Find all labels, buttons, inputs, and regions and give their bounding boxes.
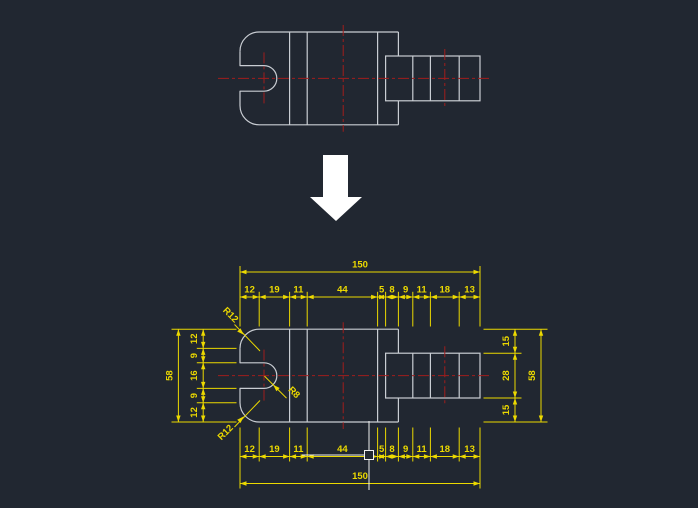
dim-arrow bbox=[259, 454, 266, 458]
dim-value: 28 bbox=[501, 370, 512, 381]
dim-arrow bbox=[474, 481, 481, 485]
dim-arrow bbox=[406, 454, 413, 458]
dim-arrow bbox=[201, 388, 205, 395]
dim-arrow bbox=[513, 353, 517, 360]
dim-arrow bbox=[392, 454, 399, 458]
dim-arrow bbox=[301, 295, 308, 299]
dim-arrow bbox=[513, 392, 517, 399]
dim-arrow bbox=[371, 295, 378, 299]
dim-arrow bbox=[513, 347, 517, 354]
dim-chain-left: 12916912 bbox=[189, 329, 205, 422]
dim-value: 11 bbox=[293, 444, 304, 455]
dim-arrow bbox=[176, 329, 180, 336]
dim-arrow bbox=[539, 329, 543, 336]
dim-value: 9 bbox=[403, 444, 408, 455]
radius-label-slot: R8 bbox=[286, 385, 302, 401]
dim-arrow bbox=[290, 295, 297, 299]
dim-value: 8 bbox=[389, 284, 394, 295]
dim-value: 12 bbox=[244, 444, 255, 455]
pickbox bbox=[365, 451, 374, 460]
dim-value: 150 bbox=[352, 471, 368, 482]
dim-value: 11 bbox=[417, 444, 428, 455]
dim-value: 11 bbox=[293, 284, 304, 295]
dim-arrow bbox=[201, 342, 205, 349]
dim-total-left: 58 bbox=[164, 329, 180, 422]
dim-value: 12 bbox=[189, 407, 200, 418]
dim-value: 15 bbox=[501, 335, 512, 346]
leader-arrow bbox=[237, 328, 244, 335]
dim-arrow bbox=[430, 454, 437, 458]
dim-total-bottom: 150 bbox=[240, 471, 480, 486]
dim-value: 13 bbox=[464, 444, 475, 455]
dim-arrow bbox=[424, 295, 431, 299]
dim-arrow bbox=[453, 295, 460, 299]
top-view bbox=[218, 25, 490, 132]
dim-value: 9 bbox=[403, 284, 408, 295]
dim-arrow bbox=[424, 454, 431, 458]
dim-arrow bbox=[513, 398, 517, 405]
down-arrow-icon bbox=[310, 155, 362, 221]
dim-value: 58 bbox=[164, 370, 175, 381]
dim-value: 9 bbox=[189, 393, 200, 398]
dim-arrow bbox=[290, 454, 297, 458]
dim-arrow bbox=[201, 382, 205, 389]
leader-arrow bbox=[237, 416, 244, 423]
dim-value: 8 bbox=[389, 444, 394, 455]
dim-arrow bbox=[201, 416, 205, 423]
dim-arrow bbox=[201, 348, 205, 355]
dim-value: 19 bbox=[269, 444, 280, 455]
dim-arrow bbox=[459, 454, 466, 458]
dim-arrow bbox=[240, 481, 247, 485]
dim-arrow bbox=[453, 454, 460, 458]
dim-arrow bbox=[201, 396, 205, 403]
radius-label-bottom-left: R12 bbox=[216, 423, 236, 443]
dim-arrow bbox=[430, 295, 437, 299]
body-top-outline bbox=[240, 32, 398, 51]
dim-arrow bbox=[406, 295, 413, 299]
dim-chain-top: 12191144589111813 bbox=[240, 284, 480, 299]
bottom-view bbox=[218, 322, 490, 429]
dim-arrow bbox=[413, 454, 420, 458]
dim-value: 5 bbox=[379, 284, 385, 295]
dim-arrow bbox=[253, 295, 260, 299]
cad-viewport[interactable]: 1501219114458911181312191144589111813150… bbox=[0, 0, 698, 508]
dim-arrow bbox=[253, 454, 260, 458]
dim-arrow bbox=[413, 295, 420, 299]
dim-arrow bbox=[201, 356, 205, 363]
dim-value: 150 bbox=[352, 259, 368, 270]
dim-arrow bbox=[392, 295, 399, 299]
dim-arrow bbox=[201, 363, 205, 370]
dim-chain-right: 152815 bbox=[501, 329, 517, 422]
dim-value: 13 bbox=[464, 284, 475, 295]
dim-arrow bbox=[539, 416, 543, 423]
dim-value: 9 bbox=[189, 353, 200, 358]
dim-arrow bbox=[474, 454, 481, 458]
dim-total-right: 58 bbox=[527, 329, 543, 422]
dim-value: 15 bbox=[501, 404, 512, 415]
dim-arrow bbox=[240, 295, 247, 299]
dim-arrow bbox=[201, 329, 205, 336]
dim-value: 5 bbox=[379, 444, 385, 455]
dim-arrow bbox=[283, 295, 290, 299]
dim-value: 44 bbox=[337, 444, 348, 455]
dim-arrow bbox=[513, 329, 517, 336]
dim-value: 12 bbox=[244, 284, 255, 295]
dim-value: 19 bbox=[269, 284, 280, 295]
dim-arrow bbox=[474, 295, 481, 299]
leader-line bbox=[235, 325, 261, 352]
dim-total-top: 150 bbox=[240, 259, 480, 274]
dim-arrow bbox=[513, 416, 517, 423]
dim-value: 12 bbox=[189, 334, 200, 345]
dim-arrow bbox=[240, 270, 247, 274]
dim-value: 44 bbox=[337, 284, 348, 295]
dim-value: 11 bbox=[417, 284, 428, 295]
dim-arrow bbox=[398, 295, 405, 299]
body-top-outline bbox=[240, 329, 398, 348]
dim-arrow bbox=[307, 295, 314, 299]
dimension-annotations: 1501219114458911181312191144589111813150… bbox=[164, 259, 547, 488]
dim-arrow bbox=[386, 454, 393, 458]
dim-arrow bbox=[240, 454, 247, 458]
dim-arrow bbox=[474, 270, 481, 274]
dim-arrow bbox=[459, 295, 466, 299]
leader-line bbox=[235, 401, 261, 428]
dim-arrow bbox=[259, 295, 266, 299]
dim-arrow bbox=[386, 295, 393, 299]
dim-arrow bbox=[398, 454, 405, 458]
dim-value: 58 bbox=[527, 370, 538, 381]
dim-chain-bottom: 12191144589111813 bbox=[240, 444, 480, 459]
dim-arrow bbox=[176, 416, 180, 423]
radius-label-top-left: R12 bbox=[220, 305, 240, 325]
dim-value: 18 bbox=[440, 444, 451, 455]
dim-value: 18 bbox=[440, 284, 451, 295]
transform-arrow bbox=[310, 155, 362, 221]
dim-value: 16 bbox=[189, 370, 200, 381]
dim-arrow bbox=[283, 454, 290, 458]
technical-drawing-canvas[interactable]: 1501219114458911181312191144589111813150… bbox=[0, 0, 698, 508]
dim-arrow bbox=[201, 403, 205, 410]
